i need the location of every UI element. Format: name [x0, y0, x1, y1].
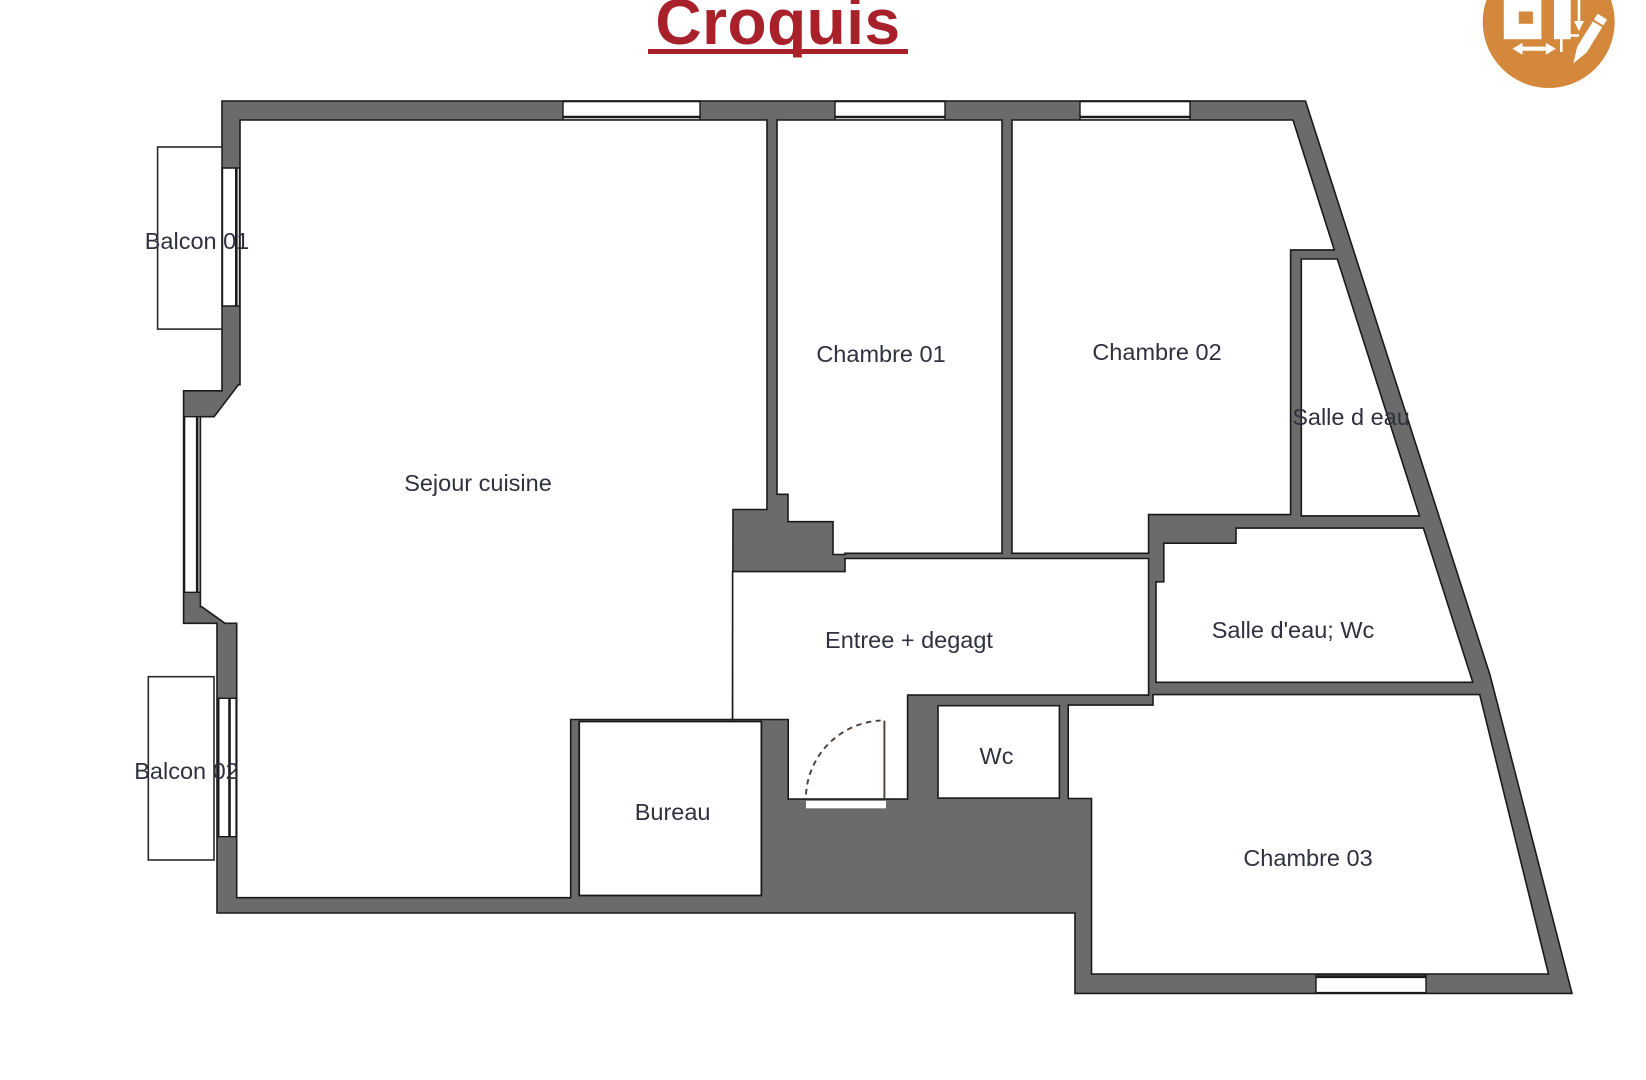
svg-text:Chambre 02: Chambre 02	[1092, 339, 1221, 365]
svg-text:Bureau: Bureau	[635, 799, 711, 825]
svg-text:Chambre 03: Chambre 03	[1243, 845, 1372, 871]
svg-text:Sejour cuisine: Sejour cuisine	[404, 470, 552, 496]
svg-text:Wc: Wc	[980, 743, 1014, 769]
svg-text:Entree + degagt: Entree + degagt	[825, 627, 993, 653]
svg-text:Salle d eau: Salle d eau	[1292, 404, 1410, 430]
svg-text:Balcon 01: Balcon 01	[145, 228, 250, 254]
svg-text:Balcon 02: Balcon 02	[134, 758, 239, 784]
svg-text:Chambre 01: Chambre 01	[816, 341, 945, 367]
svg-text:Salle d'eau; Wc: Salle d'eau; Wc	[1212, 617, 1375, 643]
